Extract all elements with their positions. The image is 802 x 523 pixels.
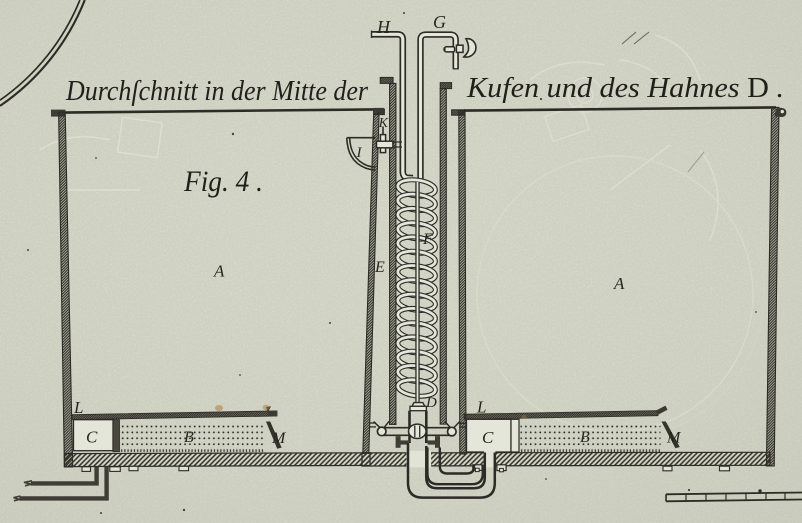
svg-text:L: L: [476, 398, 486, 417]
svg-text:Durchſchnitt in der Mitte der: Durchſchnitt in der Mitte der: [65, 75, 369, 107]
svg-text:C: C: [482, 428, 494, 447]
svg-text:A: A: [613, 274, 625, 293]
svg-text:L: L: [73, 398, 83, 417]
svg-text:A: A: [213, 262, 225, 281]
svg-text:Fig. 4 .: Fig. 4 .: [183, 165, 263, 198]
svg-text:F: F: [422, 231, 433, 248]
svg-text:D: D: [425, 395, 437, 411]
svg-text:B: B: [184, 429, 194, 446]
svg-text:M: M: [271, 430, 287, 447]
svg-text:I: I: [356, 145, 363, 161]
svg-text:E: E: [374, 259, 385, 276]
svg-text:B: B: [580, 429, 590, 446]
svg-text:Kufen und des Hahnes D .: Kufen und des Hahnes D .: [466, 72, 784, 104]
svg-text:H: H: [376, 17, 391, 37]
svg-text:M: M: [666, 430, 682, 447]
svg-text:C: C: [86, 428, 98, 447]
svg-text:G: G: [433, 12, 446, 32]
svg-text:K: K: [378, 116, 389, 131]
